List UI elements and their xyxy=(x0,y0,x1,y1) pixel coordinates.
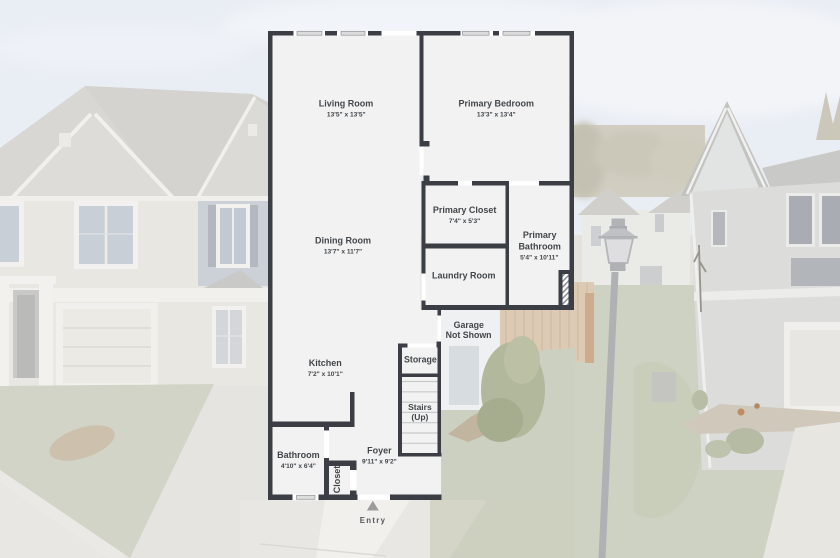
svg-text:Not Shown: Not Shown xyxy=(446,330,492,340)
svg-text:9'11" x 9'2": 9'11" x 9'2" xyxy=(362,459,397,466)
svg-text:13'5" x 13'5": 13'5" x 13'5" xyxy=(327,111,366,118)
svg-text:Storage: Storage xyxy=(404,354,437,364)
svg-text:Entry: Entry xyxy=(360,516,386,525)
svg-text:Living Room: Living Room xyxy=(319,98,374,108)
svg-text:(Up): (Up) xyxy=(411,412,428,422)
svg-text:13'3" x 13'4": 13'3" x 13'4" xyxy=(477,111,516,118)
svg-text:Stairs: Stairs xyxy=(408,402,432,412)
svg-text:Bathroom: Bathroom xyxy=(518,241,561,251)
svg-text:Bathroom: Bathroom xyxy=(277,450,320,460)
svg-text:Foyer: Foyer xyxy=(367,446,392,456)
svg-text:Primary Closet: Primary Closet xyxy=(433,205,497,215)
svg-text:Closet: Closet xyxy=(332,465,343,493)
svg-text:7'2" x 10'1": 7'2" x 10'1" xyxy=(308,371,343,378)
svg-text:13'7" x 11'7": 13'7" x 11'7" xyxy=(324,249,362,256)
svg-text:Primary Bedroom: Primary Bedroom xyxy=(459,98,535,108)
svg-text:Kitchen: Kitchen xyxy=(309,358,342,368)
svg-text:5'4" x 10'11": 5'4" x 10'11" xyxy=(520,255,558,262)
svg-text:Primary: Primary xyxy=(523,230,557,240)
svg-text:Garage: Garage xyxy=(454,320,484,330)
svg-text:Laundry Room: Laundry Room xyxy=(432,271,496,281)
svg-text:4'10" x 6'4": 4'10" x 6'4" xyxy=(281,463,316,470)
svg-text:7'4" x 5'3": 7'4" x 5'3" xyxy=(449,218,480,225)
svg-text:Dining Room: Dining Room xyxy=(315,236,371,246)
